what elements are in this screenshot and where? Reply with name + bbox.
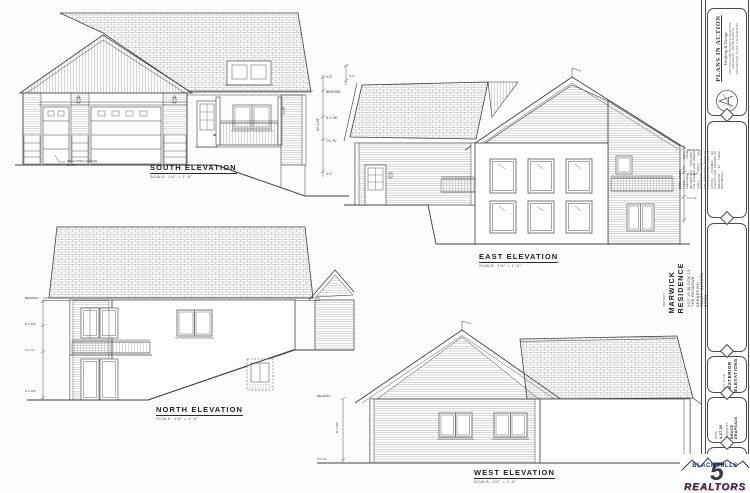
disclaimer-panel: DISCLAIMER: THESE PLANS WERE PREPARED FR… xyxy=(707,121,747,218)
garage-door-single xyxy=(43,107,69,164)
firm-contact: RESIDENTIAL PLANS & ELEVATIONS xyxy=(736,11,739,86)
logo-text-black-hills: BLACK HILLS xyxy=(680,463,750,469)
project-name: MARWICK RESIDENCE xyxy=(667,262,685,313)
black-hills-realtors-logo: 5 BLACK HILLS REALTORS xyxy=(680,454,750,493)
entry-door xyxy=(197,101,217,147)
project-address: SPEARFISH, SOUTH DAKOTA 57783 xyxy=(695,269,707,307)
dim-label: BEARING xyxy=(25,296,39,300)
wing-roof xyxy=(350,82,488,139)
gable-face xyxy=(377,337,539,399)
garage-door-double xyxy=(91,107,161,164)
disclaimer-heading: DISCLAIMER: xyxy=(677,169,681,189)
window-pair-left xyxy=(437,413,474,439)
east-elevation-title: EAST ELEVATION xyxy=(479,253,558,263)
east-elevation-scale: SCALE: 1/4" = 1'-0" xyxy=(479,264,558,268)
west-elevation-drawing: BEARING T.O. FL. 8'-1 1/8" xyxy=(315,285,710,485)
dim-label: T.O. FL. xyxy=(326,139,337,143)
porch-railing xyxy=(216,97,282,145)
east-elevation-drawing: 4'-0" BEARING 8'-1 1/8" T.O. FL. xyxy=(340,55,705,270)
lower-windows xyxy=(490,201,592,233)
right-small-window xyxy=(616,156,632,174)
dormer-window xyxy=(225,61,273,85)
right-basement-window xyxy=(627,204,654,231)
south-elevation-caption: SOUTH ELEVATION SCALE: 1/4" = 1'-0" xyxy=(150,158,237,179)
dim-label: 8'-1 1/8" xyxy=(335,422,339,433)
upper-windows xyxy=(490,159,592,193)
dimension-string xyxy=(41,300,45,400)
west-elevation-title: WEST ELEVATION xyxy=(474,469,555,479)
mid-window xyxy=(175,310,214,338)
firm-contact: SPEARFISH, SOUTH DAKOTA xyxy=(732,11,735,86)
title-block-border xyxy=(705,0,706,493)
roof-gable-end xyxy=(488,82,518,117)
north-elevation-title: NORTH ELEVATION xyxy=(156,406,243,416)
west-elevation-scale: SCALE: 1/4" = 1'-0" xyxy=(474,480,555,484)
north-elevation-scale: SCALE: 1/4" = 1'-0" xyxy=(156,417,243,421)
project-panel: PROJECT: MARWICK RESIDENCE LOT 16 BLOCK … xyxy=(707,223,747,352)
roof-pitch-flag xyxy=(572,68,581,77)
dim-label: BEARING xyxy=(317,394,331,398)
dim-label: 8'-1 1/8" xyxy=(25,322,36,326)
date-value: 4-27-20 xyxy=(719,425,723,440)
north-elevation-caption: NORTH ELEVATION SCALE: 1/4" = 1'-0" xyxy=(156,400,243,421)
dim-label: 4'-0" xyxy=(349,74,355,78)
drawn-by-value: BRUCE DRAPEAUX xyxy=(730,401,738,439)
firm-tagline: Drafting & Design xyxy=(723,11,728,86)
dim-label: 4'-0" xyxy=(326,75,332,79)
south-elevation-title: SOUTH ELEVATION xyxy=(150,164,237,174)
dim-label: 8'-1 1/8" xyxy=(326,116,338,120)
disclaimer-body: THESE PLANS WERE PREPARED FROM INFORMATI… xyxy=(682,151,724,189)
window-pair-right xyxy=(492,413,529,439)
firm-panel: PLANS IN ACTION Drafting & Design CUSTOM… xyxy=(707,8,747,116)
sheet-edge-border xyxy=(748,0,749,493)
title-block-border xyxy=(701,0,702,493)
project-address: LOT 16 BLOCK 13 THE RESERVE xyxy=(686,269,694,307)
firm-name: PLANS IN ACTION xyxy=(715,11,722,86)
roof-pitch-flag xyxy=(462,321,471,330)
logo-text-realtors: REALTORS xyxy=(680,482,750,493)
dim-label: T.O. FL. xyxy=(25,348,36,352)
dim-label: 9'-1 1/8" xyxy=(25,389,36,393)
dim-label: BEARING xyxy=(326,90,341,94)
dimension-string xyxy=(321,75,325,177)
main-roof xyxy=(49,227,313,298)
east-elevation-caption: EAST ELEVATION SCALE: 1/4" = 1'-0" xyxy=(479,247,558,268)
egress-window xyxy=(247,359,273,390)
dim-label: T.O. FL. xyxy=(317,457,328,461)
elevation-drawing-sheet: 4'-0" BEARING 8'-1 1/8" T.O. FL. 4'-0" 1… xyxy=(0,0,750,493)
side-door xyxy=(365,165,386,205)
west-elevation-caption: WEST ELEVATION SCALE: 1/4" = 1'-0" xyxy=(474,463,555,484)
dim-label: 4'-0" xyxy=(326,172,332,176)
dimension-string xyxy=(341,397,345,463)
dim-label: 10'-1 1/8" xyxy=(316,118,320,131)
grade-line xyxy=(344,205,436,244)
south-elevation-scale: SCALE: 1/4" = 1'-0" xyxy=(150,175,237,179)
garage-roof xyxy=(520,336,693,399)
date-label: DATE: xyxy=(714,430,718,439)
sheet-title: EXTERIOR xyxy=(727,361,732,388)
garage-wall xyxy=(540,399,690,463)
right-deck-railing xyxy=(611,176,673,191)
deck-railing xyxy=(70,340,152,355)
project-label: PROJECT: xyxy=(662,291,666,306)
left-deck-railing xyxy=(441,177,475,192)
dim-label: T.O. FL. xyxy=(687,196,698,200)
garage-door-note: DOOR xyxy=(67,163,77,167)
sheet-title: ELEVATIONS xyxy=(733,358,738,391)
